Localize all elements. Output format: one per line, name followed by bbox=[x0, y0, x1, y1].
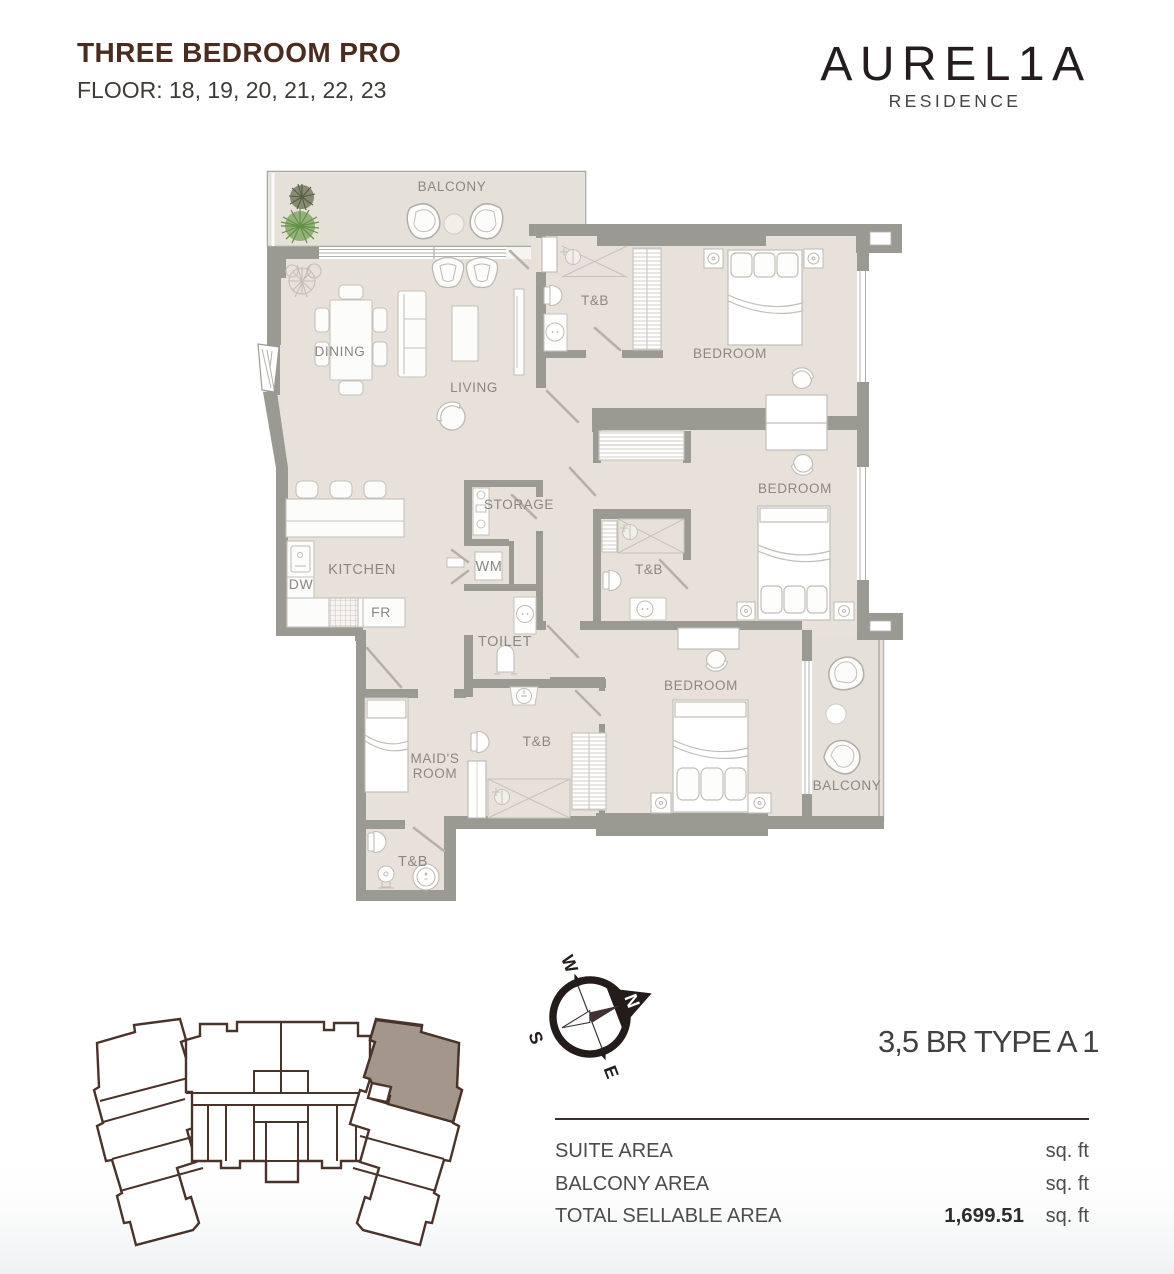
svg-text:BEDROOM: BEDROOM bbox=[758, 481, 832, 496]
svg-text:T&B: T&B bbox=[581, 293, 609, 308]
svg-text:KITCHEN: KITCHEN bbox=[328, 562, 396, 578]
svg-text:BEDROOM: BEDROOM bbox=[664, 678, 738, 693]
svg-text:BALCONY: BALCONY bbox=[813, 778, 882, 793]
svg-text:TOILET: TOILET bbox=[478, 634, 532, 650]
svg-text:T&B: T&B bbox=[398, 854, 428, 870]
svg-text:STORAGE: STORAGE bbox=[484, 497, 554, 512]
svg-text:sq. ft: sq. ft bbox=[1046, 1205, 1090, 1227]
svg-text:T&B: T&B bbox=[522, 733, 551, 749]
svg-text:DINING: DINING bbox=[315, 344, 366, 359]
svg-text:TOTAL SELLABLE AREA: TOTAL SELLABLE AREA bbox=[555, 1205, 782, 1227]
svg-text:T&B: T&B bbox=[635, 562, 663, 577]
svg-text:MAID'S: MAID'S bbox=[411, 751, 460, 766]
svg-text:BALCONY: BALCONY bbox=[418, 179, 487, 194]
svg-text:1,699.51: 1,699.51 bbox=[944, 1204, 1024, 1227]
svg-text:sq. ft: sq. ft bbox=[1046, 1173, 1090, 1195]
svg-text:ROOM: ROOM bbox=[413, 766, 457, 781]
svg-text:RESIDENCE: RESIDENCE bbox=[889, 91, 1022, 111]
svg-text:FR: FR bbox=[371, 604, 391, 620]
svg-text:SUITE AREA: SUITE AREA bbox=[555, 1140, 673, 1162]
svg-text:FLOOR: 18, 19, 20, 21, 22, 23: FLOOR: 18, 19, 20, 21, 22, 23 bbox=[77, 77, 386, 103]
svg-text:sq. ft: sq. ft bbox=[1046, 1140, 1090, 1162]
svg-text:BEDROOM: BEDROOM bbox=[693, 346, 767, 361]
svg-text:DW: DW bbox=[289, 576, 314, 592]
svg-text:BALCONY AREA: BALCONY AREA bbox=[555, 1173, 710, 1195]
svg-text:THREE BEDROOM PRO: THREE BEDROOM PRO bbox=[77, 37, 401, 68]
svg-text:AUREL1A: AUREL1A bbox=[820, 38, 1091, 91]
svg-text:LIVING: LIVING bbox=[450, 380, 498, 395]
svg-text:3,5 BR TYPE A 1: 3,5 BR TYPE A 1 bbox=[878, 1024, 1099, 1059]
svg-text:WM: WM bbox=[476, 559, 503, 575]
